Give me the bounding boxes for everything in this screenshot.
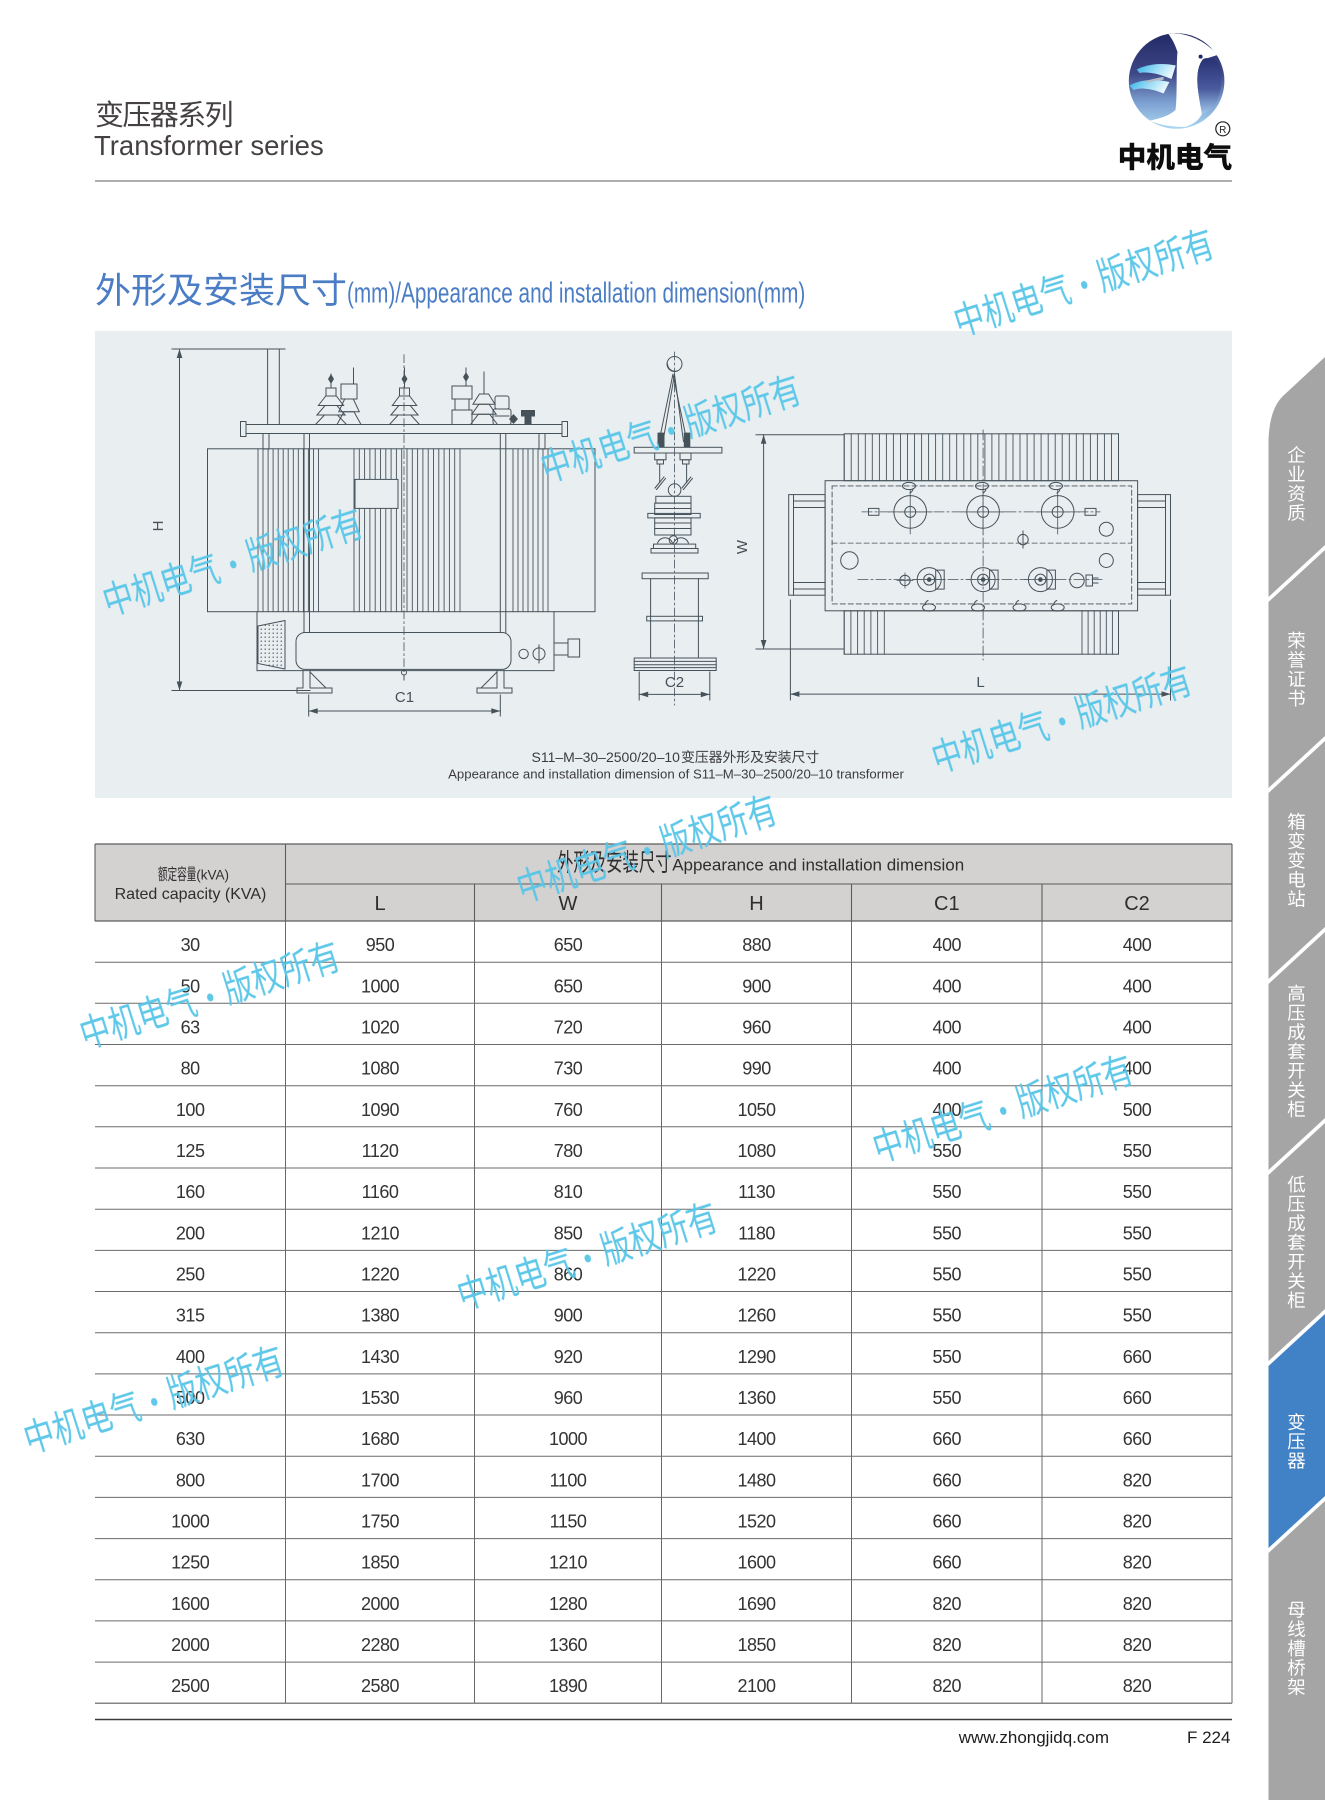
svg-text:1700: 1700	[361, 1470, 400, 1490]
svg-text:820: 820	[1123, 1512, 1152, 1532]
svg-text:1000: 1000	[549, 1429, 588, 1449]
svg-text:1250: 1250	[171, 1553, 210, 1573]
svg-text:1260: 1260	[737, 1306, 776, 1326]
svg-text:2500: 2500	[171, 1676, 210, 1696]
svg-text:550: 550	[933, 1223, 962, 1243]
svg-text:C1: C1	[395, 689, 414, 706]
svg-text:1850: 1850	[737, 1635, 776, 1655]
svg-text:720: 720	[554, 1018, 583, 1038]
svg-text:550: 550	[1123, 1141, 1152, 1161]
svg-text:www.zhongjidq.com: www.zhongjidq.com	[958, 1728, 1109, 1747]
svg-text:1210: 1210	[361, 1223, 400, 1243]
svg-text:Rated capacity (KVA): Rated capacity (KVA)	[115, 886, 267, 903]
svg-text:2000: 2000	[361, 1594, 400, 1614]
svg-text:550: 550	[933, 1388, 962, 1408]
svg-text:550: 550	[1123, 1223, 1152, 1243]
svg-text:1890: 1890	[549, 1676, 588, 1696]
svg-text:660: 660	[1123, 1388, 1152, 1408]
svg-text:800: 800	[176, 1470, 205, 1490]
svg-text:1080: 1080	[737, 1141, 776, 1161]
svg-text:2100: 2100	[737, 1676, 776, 1696]
svg-text:660: 660	[933, 1512, 962, 1532]
svg-text:650: 650	[554, 935, 583, 955]
svg-text:1220: 1220	[737, 1265, 776, 1285]
svg-text:820: 820	[1123, 1676, 1152, 1696]
svg-text:Appearance and installation di: Appearance and installation dimension of…	[448, 767, 904, 782]
svg-text:1050: 1050	[737, 1100, 776, 1120]
svg-text:730: 730	[554, 1059, 583, 1079]
svg-text:810: 810	[554, 1182, 583, 1202]
svg-text:660: 660	[933, 1553, 962, 1573]
svg-text:880: 880	[742, 935, 771, 955]
svg-text:1000: 1000	[171, 1512, 210, 1532]
svg-text:950: 950	[366, 935, 395, 955]
svg-text:550: 550	[1123, 1182, 1152, 1202]
svg-text:550: 550	[933, 1265, 962, 1285]
svg-text:1080: 1080	[361, 1059, 400, 1079]
svg-text:660: 660	[933, 1470, 962, 1490]
svg-text:400: 400	[176, 1347, 205, 1367]
svg-text:1850: 1850	[361, 1553, 400, 1573]
svg-text:63: 63	[181, 1018, 201, 1038]
svg-text:820: 820	[1123, 1470, 1152, 1490]
svg-text:660: 660	[1123, 1347, 1152, 1367]
svg-text:2580: 2580	[361, 1676, 400, 1696]
svg-text:400: 400	[933, 976, 962, 996]
svg-text:2280: 2280	[361, 1635, 400, 1655]
svg-text:400: 400	[933, 1018, 962, 1038]
svg-text:125: 125	[176, 1141, 205, 1161]
svg-text:100: 100	[176, 1100, 205, 1120]
svg-text:80: 80	[181, 1059, 201, 1079]
svg-text:H: H	[749, 893, 763, 915]
svg-text:1360: 1360	[737, 1388, 776, 1408]
svg-text:50: 50	[181, 976, 201, 996]
svg-text:1380: 1380	[361, 1306, 400, 1326]
svg-text:30: 30	[181, 935, 201, 955]
svg-text:1680: 1680	[361, 1429, 400, 1449]
svg-text:315: 315	[176, 1306, 205, 1326]
svg-text:1360: 1360	[549, 1635, 588, 1655]
svg-text:660: 660	[933, 1429, 962, 1449]
svg-text:850: 850	[554, 1223, 583, 1243]
svg-text:1400: 1400	[737, 1429, 776, 1449]
svg-text:400: 400	[1123, 1018, 1152, 1038]
svg-text:1280: 1280	[549, 1594, 588, 1614]
svg-text:550: 550	[1123, 1306, 1152, 1326]
svg-text:1150: 1150	[550, 1512, 587, 1532]
svg-text:1090: 1090	[361, 1100, 400, 1120]
svg-text:W: W	[734, 539, 751, 554]
svg-text:820: 820	[1123, 1594, 1152, 1614]
svg-text:200: 200	[176, 1223, 205, 1243]
svg-text:400: 400	[1123, 935, 1152, 955]
svg-text:W: W	[559, 893, 578, 915]
svg-text:900: 900	[742, 976, 771, 996]
svg-text:820: 820	[1123, 1635, 1152, 1655]
svg-text:990: 990	[742, 1059, 771, 1079]
svg-text:900: 900	[554, 1306, 583, 1326]
svg-text:820: 820	[933, 1594, 962, 1614]
svg-text:760: 760	[554, 1100, 583, 1120]
svg-text:1180: 1180	[738, 1223, 775, 1243]
svg-text:L: L	[976, 674, 984, 691]
svg-text:820: 820	[933, 1676, 962, 1696]
svg-text:1290: 1290	[737, 1347, 776, 1367]
svg-text:1160: 1160	[362, 1182, 399, 1202]
svg-text:(kVA): (kVA)	[196, 868, 229, 883]
svg-text:400: 400	[933, 935, 962, 955]
svg-text:400: 400	[933, 1059, 962, 1079]
svg-text:250: 250	[176, 1265, 205, 1285]
svg-text:Transformer series: Transformer series	[94, 130, 324, 161]
svg-text:C2: C2	[1124, 893, 1150, 915]
svg-text:550: 550	[933, 1306, 962, 1326]
svg-text:1600: 1600	[737, 1553, 776, 1573]
svg-text:780: 780	[554, 1141, 583, 1161]
svg-text:S11–M–30–2500/20–10: S11–M–30–2500/20–10	[532, 749, 681, 765]
svg-text:550: 550	[933, 1141, 962, 1161]
svg-text:R: R	[1219, 125, 1226, 136]
svg-text:960: 960	[554, 1388, 583, 1408]
svg-text:650: 650	[554, 976, 583, 996]
svg-text:500: 500	[1123, 1100, 1152, 1120]
svg-text:1480: 1480	[737, 1470, 776, 1490]
svg-text:1520: 1520	[737, 1512, 776, 1532]
svg-text:1100: 1100	[550, 1470, 587, 1490]
svg-text:160: 160	[176, 1182, 205, 1202]
svg-text:550: 550	[1123, 1265, 1152, 1285]
svg-text:1120: 1120	[362, 1141, 399, 1161]
svg-text:F 224: F 224	[1187, 1728, 1230, 1747]
svg-text:820: 820	[1123, 1553, 1152, 1573]
svg-text:630: 630	[176, 1429, 205, 1449]
svg-text:Appearance and installation di: Appearance and installation dimension	[672, 855, 964, 874]
svg-text:L: L	[374, 893, 385, 915]
svg-text:1000: 1000	[361, 976, 400, 996]
svg-text:1430: 1430	[361, 1347, 400, 1367]
svg-text:2000: 2000	[171, 1635, 210, 1655]
svg-text:1690: 1690	[737, 1594, 776, 1614]
svg-text:1020: 1020	[361, 1018, 400, 1038]
svg-text:920: 920	[554, 1347, 583, 1367]
svg-text:1750: 1750	[361, 1512, 400, 1532]
svg-text:550: 550	[933, 1182, 962, 1202]
svg-text:1600: 1600	[171, 1594, 210, 1614]
svg-text:1220: 1220	[361, 1265, 400, 1285]
svg-text:1130: 1130	[738, 1182, 775, 1202]
svg-text:820: 820	[933, 1635, 962, 1655]
svg-text:C2: C2	[665, 674, 684, 691]
svg-text:1530: 1530	[361, 1388, 400, 1408]
svg-text:(mm)/Appearance and installati: (mm)/Appearance and installation dimensi…	[347, 277, 805, 309]
svg-text:400: 400	[1123, 976, 1152, 996]
svg-text:960: 960	[742, 1018, 771, 1038]
svg-text:C1: C1	[934, 893, 960, 915]
svg-text:660: 660	[1123, 1429, 1152, 1449]
svg-text:H: H	[150, 521, 167, 532]
svg-text:550: 550	[933, 1347, 962, 1367]
svg-text:1210: 1210	[549, 1553, 588, 1573]
